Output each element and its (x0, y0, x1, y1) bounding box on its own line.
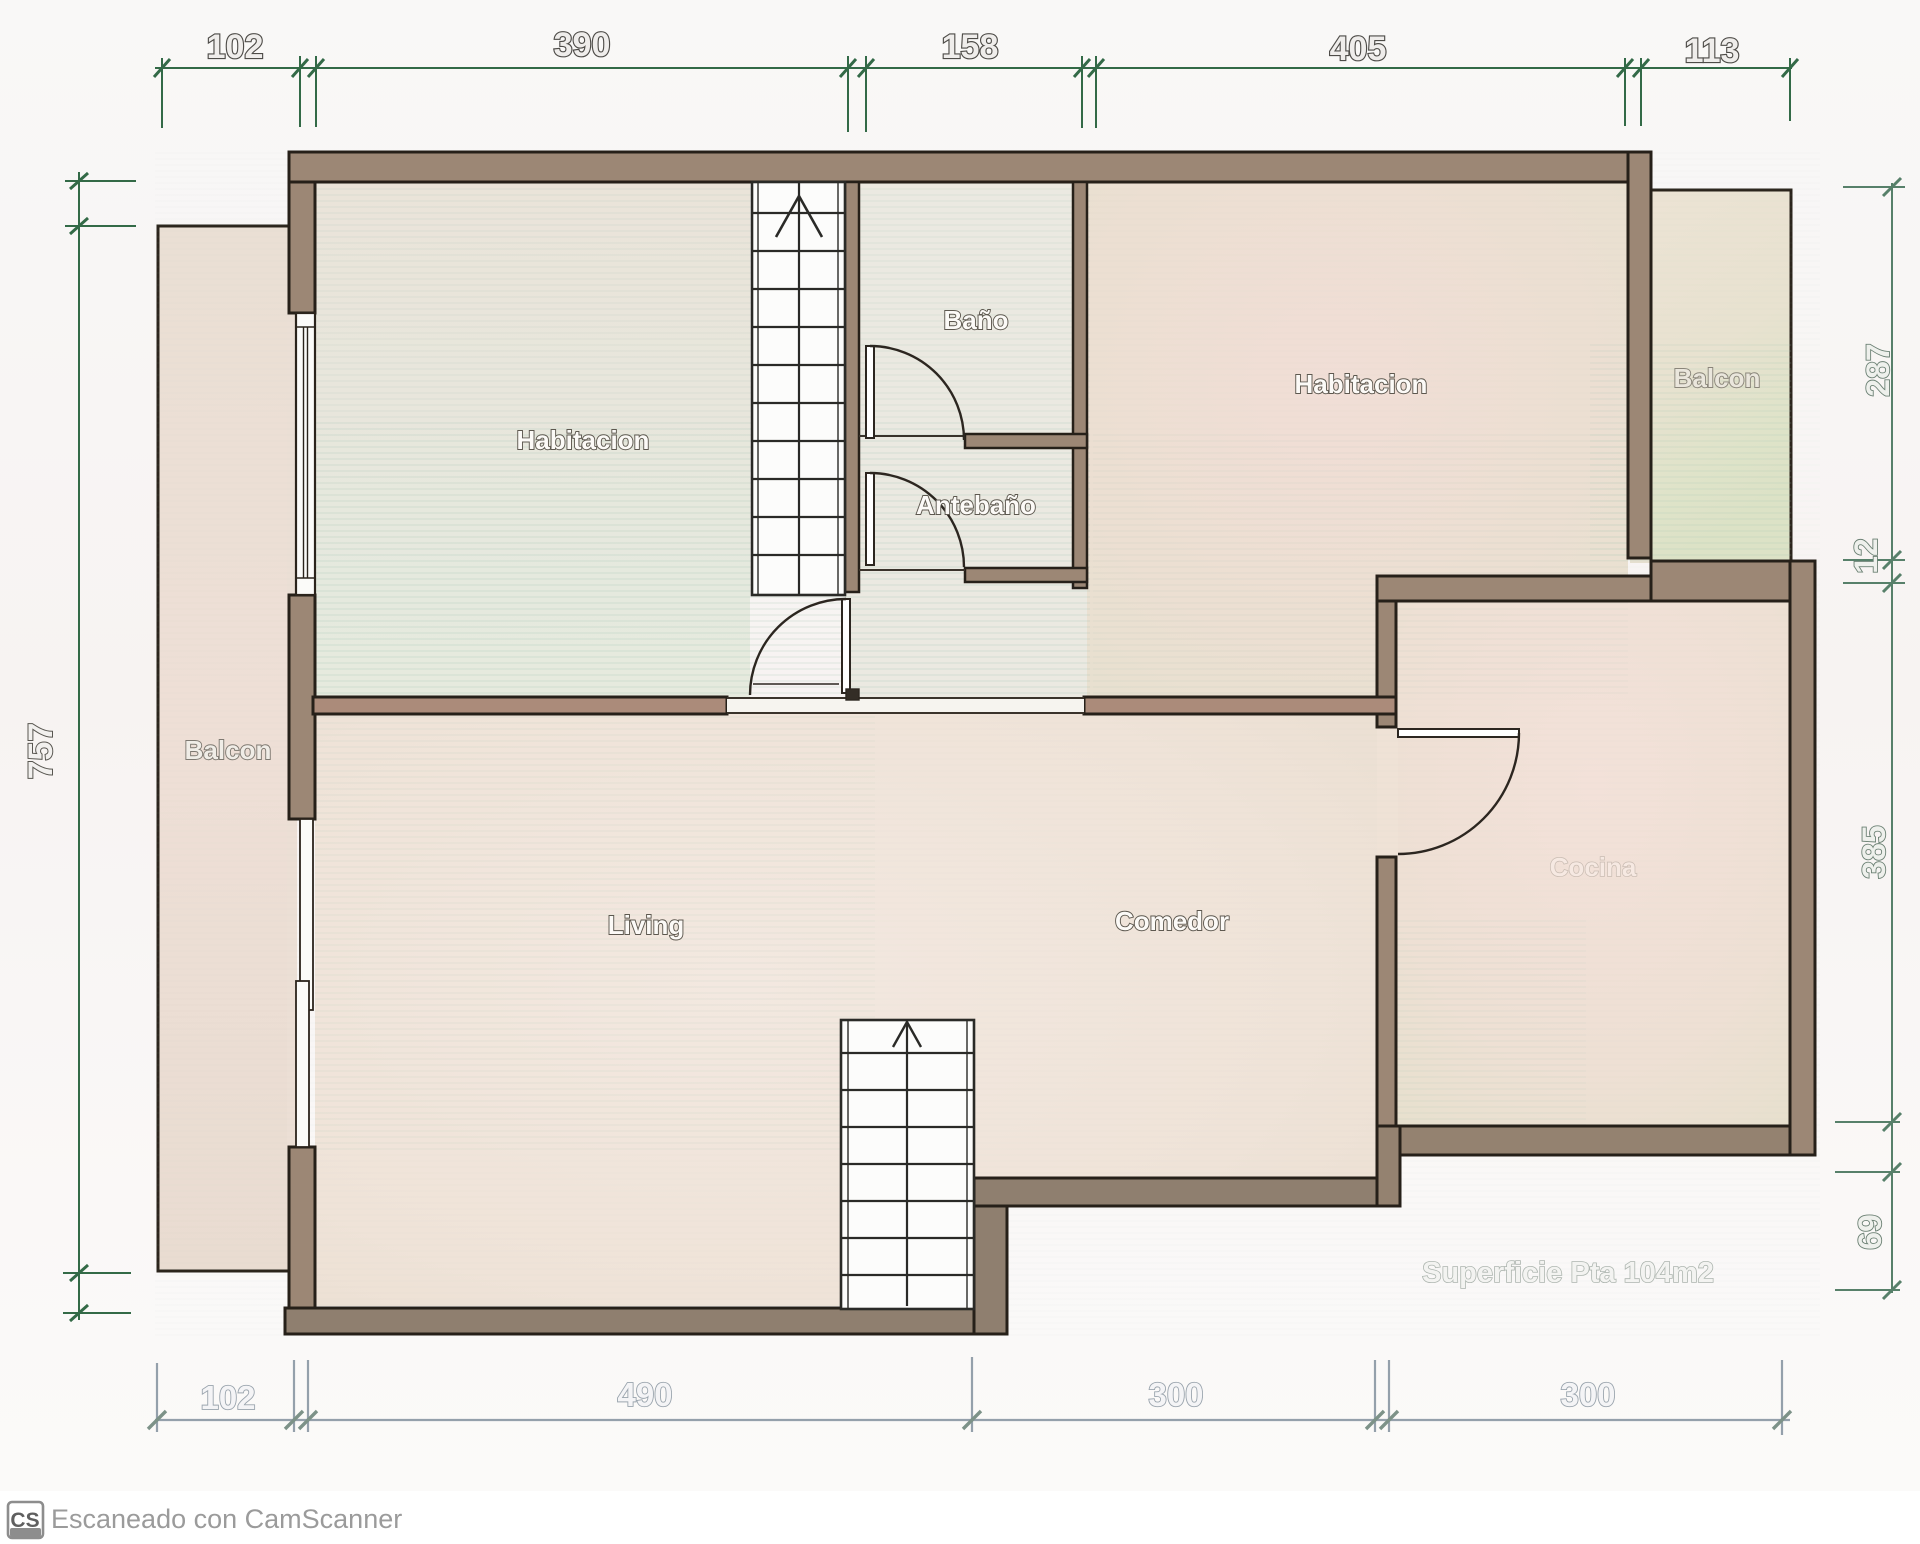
svg-text:102: 102 (207, 28, 264, 66)
svg-text:Living: Living (608, 910, 685, 940)
svg-text:69: 69 (1852, 1214, 1888, 1250)
svg-text:102: 102 (200, 1379, 255, 1416)
svg-text:490: 490 (617, 1376, 672, 1413)
svg-text:12: 12 (1848, 538, 1884, 574)
svg-text:Cocina: Cocina (1550, 852, 1637, 882)
svg-text:Superficie Pta 104m2: Superficie Pta 104m2 (1422, 1257, 1714, 1289)
svg-text:158: 158 (942, 28, 999, 66)
svg-text:390: 390 (554, 26, 611, 64)
svg-text:Habitacion: Habitacion (517, 425, 650, 455)
svg-text:757: 757 (22, 723, 60, 780)
svg-text:Antebaño: Antebaño (916, 490, 1036, 520)
svg-text:385: 385 (1856, 825, 1892, 878)
svg-text:Comedor: Comedor (1115, 906, 1229, 936)
svg-text:300: 300 (1560, 1376, 1615, 1413)
svg-text:CS: CS (10, 1509, 39, 1532)
svg-text:Baño: Baño (944, 305, 1009, 335)
svg-text:Habitacion: Habitacion (1295, 369, 1428, 399)
svg-text:113: 113 (1685, 32, 1740, 70)
svg-text:Balcon: Balcon (1674, 363, 1761, 393)
svg-text:300: 300 (1148, 1376, 1203, 1413)
svg-text:287: 287 (1860, 343, 1896, 396)
svg-text:Escaneado con CamScanner: Escaneado con CamScanner (51, 1504, 402, 1534)
svg-text:405: 405 (1330, 30, 1387, 68)
svg-text:Balcon: Balcon (185, 735, 272, 765)
